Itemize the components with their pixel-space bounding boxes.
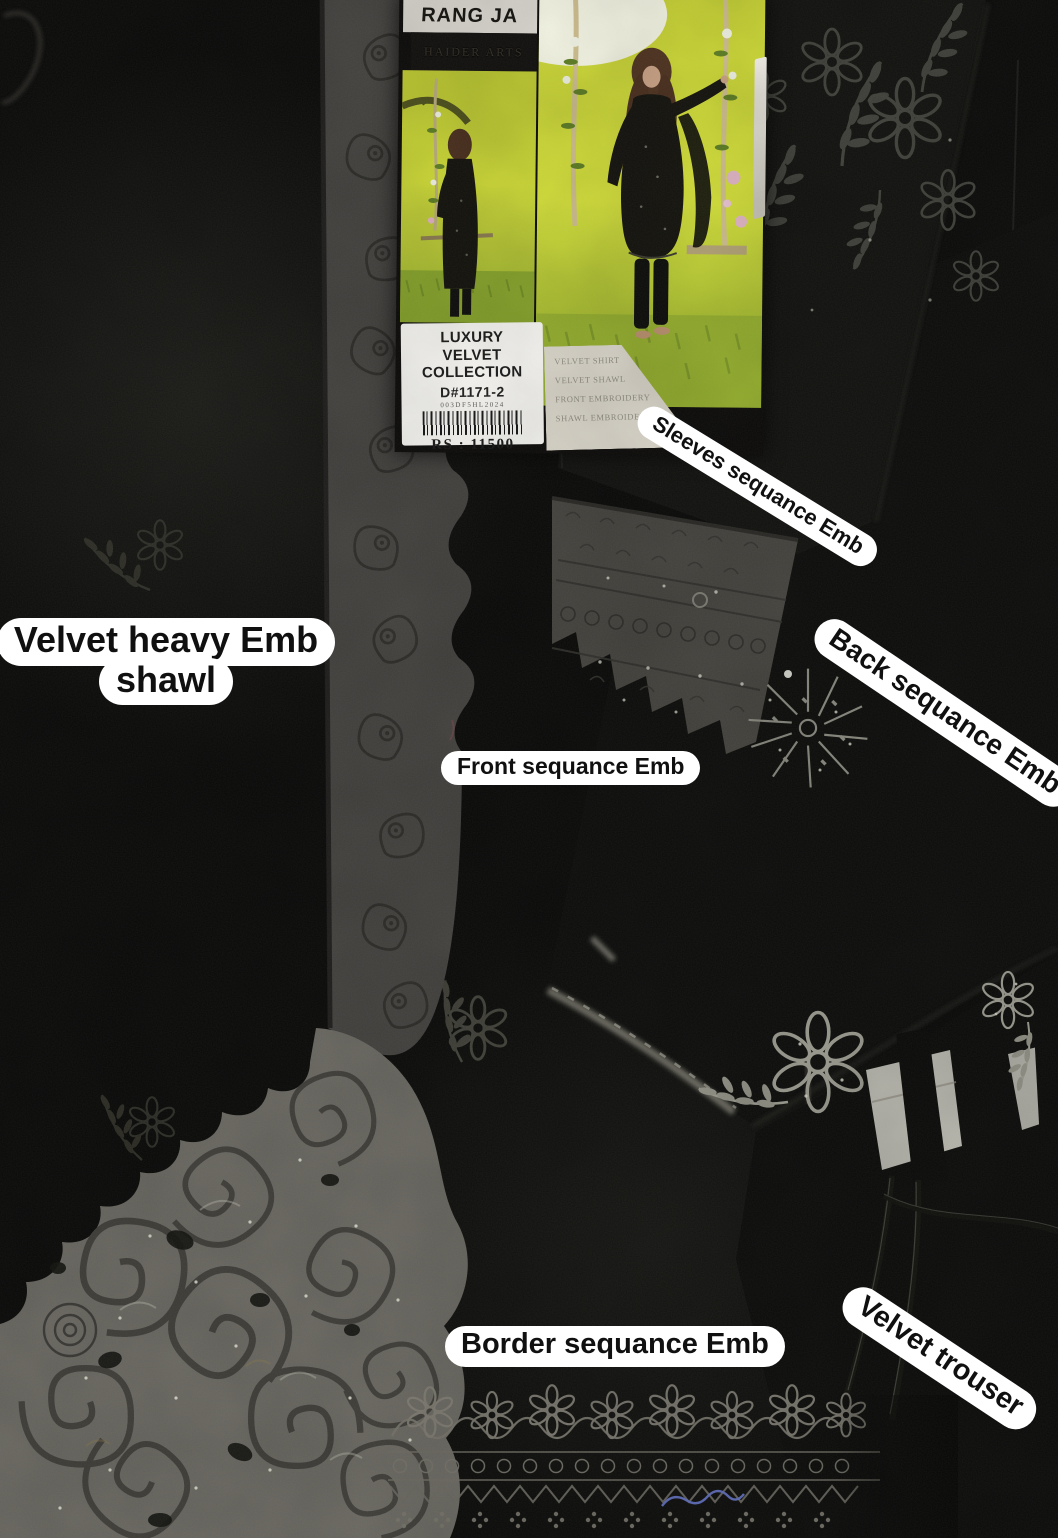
barcode [423, 410, 523, 435]
annotation-front: Front sequance Emb [441, 751, 700, 785]
model-photo-back [400, 70, 537, 323]
annotation-border: Border sequance Emb [445, 1326, 785, 1367]
lot-code: 003DF5HL2024 [402, 400, 544, 409]
brand-card: RANG JA HAIDER ARTS [395, 0, 768, 456]
maker-band: HAIDER ARTS [411, 32, 537, 71]
product-photo: RANG JA HAIDER ARTS [0, 0, 1058, 1538]
collection-title: LUXURY VELVET COLLECTION [401, 328, 544, 383]
page-curl [753, 56, 767, 219]
annotation-shawl: Velvet heavy Emb shawl [10, 618, 322, 705]
brand-title: RANG JA [421, 4, 519, 28]
price-text: RS : 11500 [402, 436, 544, 454]
design-number: D#1171-2 [401, 383, 543, 400]
maker-name: HAIDER ARTS [424, 44, 524, 60]
annotation-shawl-line2: shawl [99, 658, 233, 706]
price-label: LUXURY VELVET COLLECTION D#1171-2 003DF5… [401, 322, 544, 445]
brand-header: RANG JA [403, 0, 537, 34]
